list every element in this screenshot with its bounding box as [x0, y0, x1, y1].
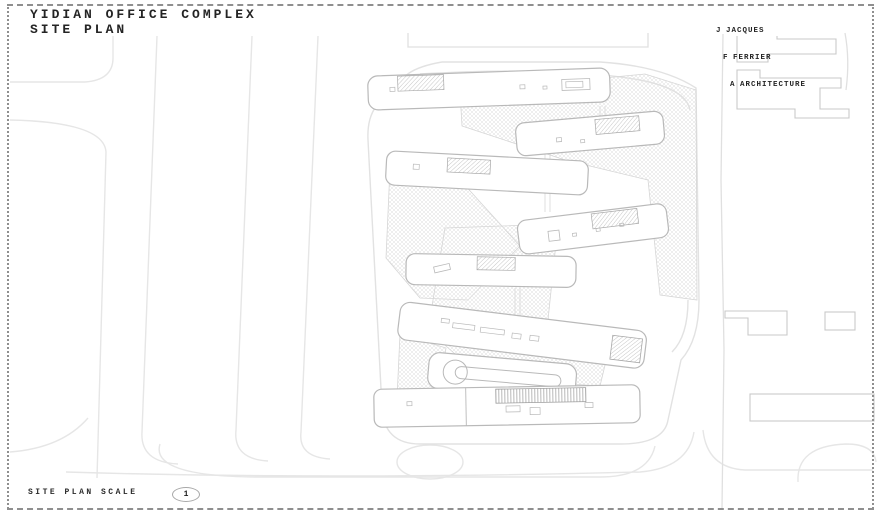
scale-label: SITE PLAN SCALE: [28, 488, 138, 497]
lane-line: [142, 36, 178, 464]
road-island-u: [159, 444, 655, 477]
building-4: [516, 203, 669, 255]
roof-hatch: [477, 257, 515, 271]
loop-inner-right: [672, 300, 688, 352]
context-building-4: [825, 312, 855, 330]
project-title: YIDIAN OFFICE COMPLEX: [30, 7, 257, 22]
scale-number: 1: [184, 490, 189, 499]
road-bottom-right: [703, 430, 873, 470]
sheet-border-right: [872, 4, 874, 509]
road-ramp-lower: [10, 120, 106, 478]
roof-hatch-strip: [496, 388, 586, 404]
highway-lanes: [10, 36, 330, 478]
context-parcel-top: [408, 33, 648, 47]
road-curve: [10, 418, 88, 452]
building-5: [406, 254, 577, 288]
building-8: [374, 385, 641, 428]
bottom-roads: [66, 430, 876, 482]
architect-line-1: JJACQUES: [716, 27, 806, 36]
sheet-border-top: [7, 4, 874, 6]
roof-hatch: [447, 158, 491, 174]
context-building-5: [750, 394, 874, 421]
title-block: YIDIAN OFFICE COMPLEX SITE PLAN: [30, 7, 257, 37]
sheet-border-bottom: [7, 508, 874, 510]
road-oval-right: [798, 444, 876, 482]
sheet-title: SITE PLAN: [30, 22, 257, 37]
lane-line: [236, 36, 268, 461]
roof-hatch: [397, 75, 443, 92]
architect-line-2: FFERRIER: [723, 54, 806, 63]
roof-hatch: [610, 335, 643, 362]
scale-reference-bubble: 1: [172, 487, 200, 502]
architect-line-3: AARCHITECTURE: [730, 81, 806, 90]
site-plan-sheet: YIDIAN OFFICE COMPLEX SITE PLAN JJACQUES…: [0, 0, 882, 526]
road-ramp-upper: [10, 36, 113, 82]
architect-logo: JJACQUES FFERRIER AARCHITECTURE: [716, 9, 806, 108]
context-building-3: [725, 311, 787, 335]
lane-line: [301, 36, 330, 459]
road-island-oval: [397, 445, 463, 479]
sheet-border-left: [7, 4, 9, 509]
road-stub: [845, 33, 848, 90]
